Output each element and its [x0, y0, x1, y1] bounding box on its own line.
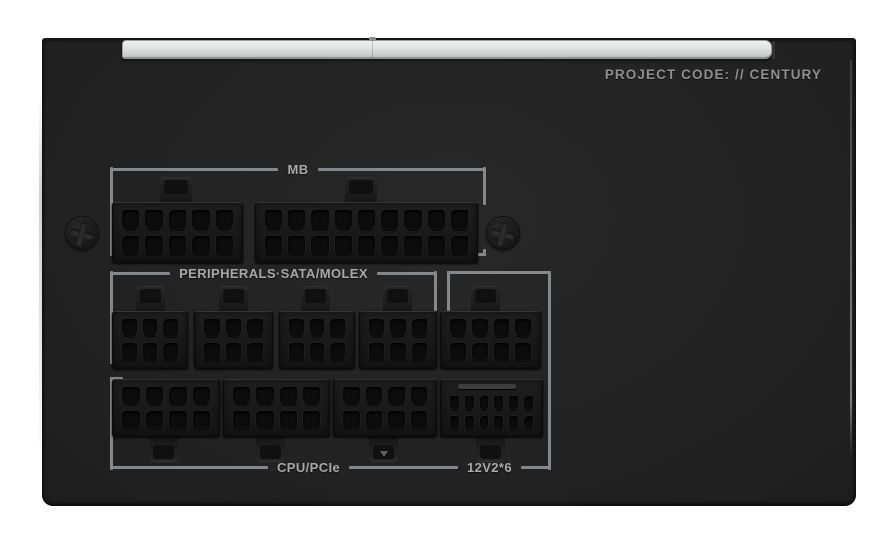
connector-clip: [369, 436, 398, 462]
pin-hole: [464, 395, 475, 411]
pin-hole: [389, 318, 406, 338]
pin-hole: [288, 342, 305, 362]
pin-hole: [357, 209, 376, 231]
pin-hole: [225, 318, 243, 338]
right-edge-highlight: [850, 60, 852, 456]
phillips-screw-left: [65, 216, 99, 250]
bracket-line: [110, 466, 268, 469]
connector-clip: [256, 436, 285, 462]
peripherals-bracket-right-line: [434, 271, 437, 311]
pin-hole: [225, 342, 243, 362]
pin-hole: [264, 209, 283, 231]
top-chassis-strip: [122, 40, 772, 59]
connector-clip: [160, 177, 192, 203]
pin-hole: [411, 342, 428, 362]
pin-hole: [449, 318, 467, 338]
pin-hole: [203, 318, 221, 338]
pin-hole: [479, 395, 490, 411]
pin-hole: [264, 235, 283, 257]
pin-hole: [168, 209, 187, 231]
pin-hole: [144, 209, 163, 231]
pin-hole: [121, 410, 141, 430]
pin-hole: [368, 318, 385, 338]
mb-group-label: MB: [278, 162, 317, 177]
pin-hole: [387, 386, 406, 406]
connector-mb-10pin: [112, 202, 243, 263]
pin-hole: [215, 209, 234, 231]
pin-hole: [232, 386, 251, 406]
pin-hole: [302, 386, 321, 406]
pin-hole: [191, 209, 210, 231]
pin-hole: [162, 342, 179, 362]
bracket-line: [349, 466, 458, 469]
pin-hole: [302, 410, 321, 430]
pin-hole: [411, 318, 428, 338]
pin-hole: [255, 410, 274, 430]
pin-hole: [144, 235, 163, 257]
pin-hole: [309, 318, 326, 338]
pin-hole: [329, 342, 346, 362]
pin-hole: [410, 386, 429, 406]
left-edge-highlight: [39, 95, 42, 505]
connector-clip: [219, 286, 248, 312]
pin-hole: [255, 386, 274, 406]
connector-clip: [136, 286, 165, 312]
pin-hole: [145, 386, 165, 406]
v12-bracket-left-line: [447, 271, 450, 311]
connector-peripheral-2: [194, 311, 273, 369]
connector-clip: [345, 177, 377, 203]
mb-bracket-right-line: [483, 167, 486, 205]
bracket-line: [318, 168, 486, 171]
pin-hole: [279, 386, 298, 406]
pin-hole: [309, 342, 326, 362]
pin-hole: [287, 209, 306, 231]
pin-hole: [191, 235, 210, 257]
pin-hole: [192, 386, 212, 406]
pin-hole: [168, 235, 187, 257]
bracket-line: [110, 168, 278, 171]
pin-hole: [203, 342, 221, 362]
pin-hole: [471, 342, 489, 362]
connector-clip: [476, 436, 505, 462]
pin-hole: [287, 235, 306, 257]
pin-hole: [365, 410, 384, 430]
clip-arrow-mark: [380, 451, 388, 457]
pin-hole: [410, 410, 429, 430]
pin-hole: [192, 410, 212, 430]
peripherals-bracket-top-rail: PERIPHERALS·SATA/MOLEX: [110, 265, 437, 281]
connector-clip: [383, 286, 412, 312]
pin-hole: [357, 235, 376, 257]
pin-hole: [246, 318, 264, 338]
connector-aux-8pin: [440, 311, 541, 369]
pin-hole: [246, 342, 264, 362]
pin-hole: [145, 410, 165, 430]
bracket-line: [377, 272, 437, 275]
pin-hole: [162, 318, 179, 338]
pin-hole: [368, 342, 385, 362]
phillips-screw-right: [486, 216, 520, 250]
connector-clip: [149, 436, 178, 462]
pin-hole: [121, 386, 141, 406]
pin-hole: [121, 318, 138, 338]
pin-hole: [493, 415, 504, 431]
pin-hole: [508, 395, 519, 411]
connector-peripheral-3: [279, 311, 355, 369]
psu-modular-panel-photo: PROJECT CODE: // CENTURY MB PERIPHERALS·…: [0, 0, 895, 547]
strip-end-step: [772, 41, 775, 59]
pin-hole: [121, 235, 140, 257]
pin-hole: [449, 342, 467, 362]
pin-hole: [514, 318, 532, 338]
connector-cpu-pcie-2: [223, 379, 330, 437]
pin-hole: [334, 209, 353, 231]
pin-hole: [523, 415, 534, 431]
pin-hole: [450, 209, 469, 231]
strip-seam-line: [372, 41, 373, 58]
pin-hole: [449, 415, 460, 431]
pin-hole: [403, 209, 422, 231]
pin-hole: [450, 235, 469, 257]
pin-hole: [403, 235, 422, 257]
sense-pin-strip: [458, 384, 516, 389]
pin-hole: [514, 342, 532, 362]
project-code-label: PROJECT CODE: // CENTURY: [600, 67, 822, 82]
pin-hole: [342, 386, 361, 406]
pin-hole: [471, 318, 489, 338]
pin-hole: [334, 235, 353, 257]
pin-hole: [389, 342, 406, 362]
pin-hole: [427, 235, 446, 257]
pin-hole: [427, 209, 446, 231]
pin-hole: [232, 410, 251, 430]
pin-hole: [142, 318, 159, 338]
pin-hole: [168, 410, 188, 430]
pin-hole: [279, 410, 298, 430]
pin-hole: [387, 410, 406, 430]
bracket-line: [521, 466, 551, 469]
pin-hole: [329, 318, 346, 338]
pin-hole: [121, 209, 140, 231]
pin-hole: [168, 386, 188, 406]
pin-hole: [449, 395, 460, 411]
pin-hole: [380, 209, 399, 231]
pin-hole: [493, 342, 511, 362]
pin-hole: [121, 342, 138, 362]
pin-hole: [380, 235, 399, 257]
pin-hole: [464, 415, 475, 431]
pin-hole: [310, 235, 329, 257]
mb-bracket-top-rail: MB: [110, 161, 486, 177]
pin-hole: [310, 209, 329, 231]
connector-cpu-pcie-1: [112, 379, 220, 437]
bracket-line: [110, 272, 170, 275]
connector-peripheral-1: [112, 311, 188, 369]
pin-hole: [493, 318, 511, 338]
pin-hole: [142, 342, 159, 362]
pin-hole: [215, 235, 234, 257]
pin-hole: [342, 410, 361, 430]
pin-hole: [365, 386, 384, 406]
v12-bracket-top-line: [447, 271, 551, 274]
connector-peripheral-4: [359, 311, 437, 369]
v12-bracket-right-line: [548, 271, 551, 470]
connector-cpu-pcie-3: [333, 379, 437, 437]
pin-hole: [288, 318, 305, 338]
pin-hole: [508, 415, 519, 431]
peripherals-group-label: PERIPHERALS·SATA/MOLEX: [170, 266, 377, 281]
strip-notch: [369, 37, 376, 41]
connector-clip: [471, 286, 500, 312]
pin-hole: [523, 395, 534, 411]
connector-mb-18pin: [255, 202, 478, 263]
pin-hole: [479, 415, 490, 431]
connector-clip: [301, 286, 330, 312]
pin-hole: [493, 395, 504, 411]
